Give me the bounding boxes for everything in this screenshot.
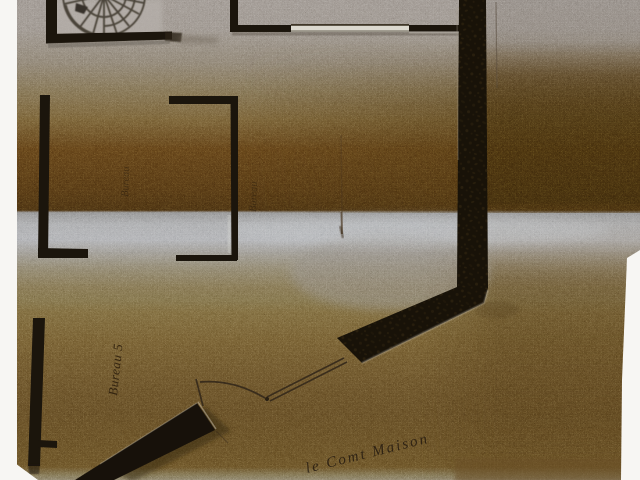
svg-text:Bureau: Bureau [248, 181, 260, 212]
svg-text:Bureau: Bureau [120, 166, 132, 197]
